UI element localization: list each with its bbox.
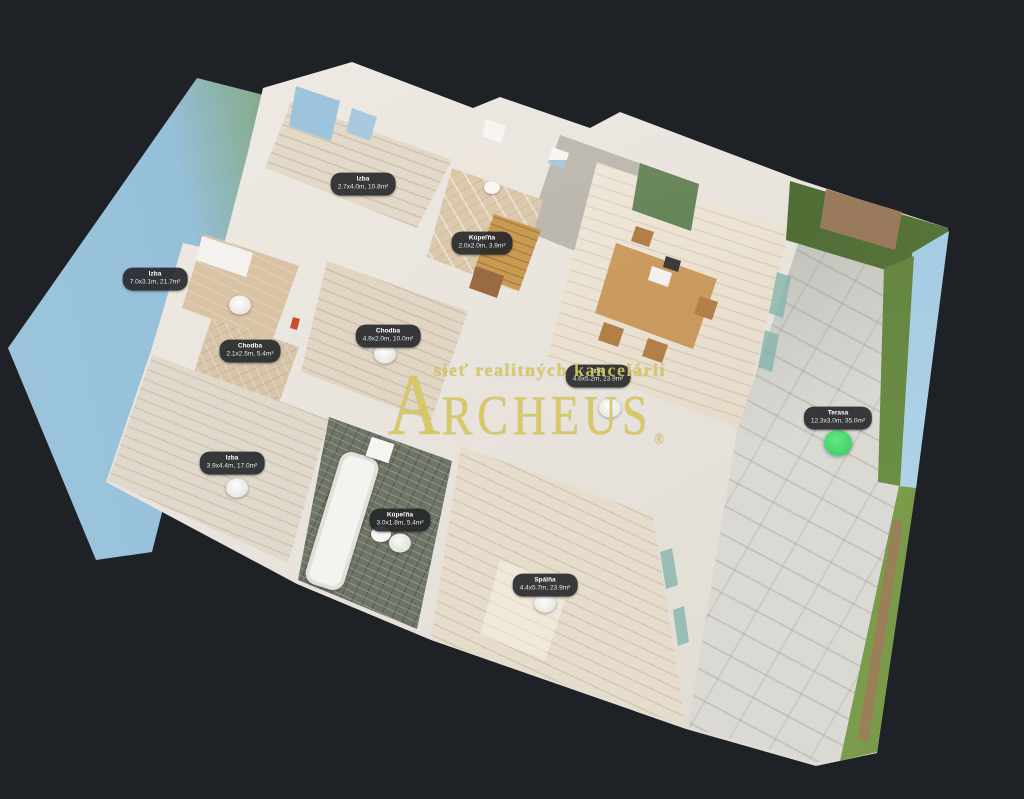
brand-initial: A: [388, 357, 442, 454]
room-label-name: Spálňa: [520, 577, 571, 585]
room-label-name: Izba: [338, 176, 389, 184]
room-label-name: Izba: [207, 455, 258, 463]
brand-rest: RCHEUS: [442, 385, 653, 447]
registered-mark: ®: [654, 431, 664, 448]
panorama-sweep-marker[interactable]: [226, 479, 248, 498]
room-label-dimensions: 12.3x3.0m, 35.0m²: [811, 418, 865, 426]
panorama-sky-right: [0, 0, 1024, 799]
roof-section: [0, 0, 1024, 799]
room-label-dimensions: 3.9x4.4m, 17.0m²: [207, 463, 258, 471]
floor-room-left: [0, 0, 1024, 799]
room-label-name: Kúpeľňa: [377, 512, 424, 520]
room-label[interactable]: Spálňa4.4x5.7m, 23.9m²: [513, 574, 578, 597]
room-label[interactable]: Kúpeľňa2.0x2.0m, 3.9m²: [452, 232, 513, 255]
room-label-dimensions: 3.0x1.8m, 5.4m²: [377, 520, 424, 528]
neighbor-house-panorama: [0, 0, 1024, 799]
hedge-panorama: [0, 0, 1024, 799]
toilet-wc: [484, 181, 500, 194]
room-label[interactable]: Izba3.9x4.4m, 17.0m²: [200, 452, 265, 475]
window-bath-small: [0, 0, 1024, 799]
floor-hallway-main: [0, 0, 1024, 799]
agency-watermark: sieť realitných kancelárií ARCHEUS®: [0, 0, 1024, 799]
glass-door-terrace-1: [0, 0, 1024, 799]
room-label[interactable]: Izba4.6x5.2m, 23.9m²: [566, 365, 631, 388]
floor-kitchen: [0, 0, 1024, 799]
panorama-sweep-marker[interactable]: [599, 399, 621, 418]
dining-chair: [0, 0, 1024, 799]
window-top-room: [0, 0, 1024, 799]
panorama-path-stripe: [0, 0, 1024, 799]
table-item-white: [0, 0, 1024, 799]
panorama-grass-right-upper: [0, 0, 1024, 799]
glass-window-bedroom-1: [0, 0, 1024, 799]
dollhouse-3d-view[interactable]: Izba7.0x3.1m, 21.7m²Izba2.7x4.0m, 10.8m²…: [0, 0, 1024, 799]
floor-terrace: [0, 0, 1024, 799]
room-label-dimensions: 7.0x3.1m, 21.7m²: [130, 279, 181, 287]
floor-room-top: [0, 0, 1024, 799]
table-item-dark: [0, 0, 1024, 799]
watermark-tagline: sieť realitných kancelárií: [434, 360, 666, 381]
room-label-name: Izba: [130, 271, 181, 279]
window-top-room-2: [0, 0, 1024, 799]
room-label[interactable]: Chodba2.1x2.5m, 5.4m²: [220, 340, 281, 363]
floor-dining-room: [0, 0, 1024, 799]
room-label-name: Kúpeľňa: [459, 235, 506, 243]
window-dining-trees: [0, 0, 1024, 799]
house-walls-base: [0, 0, 1024, 799]
panorama-grass-right-lower: [0, 0, 1024, 799]
room-label-dimensions: 2.0x2.0m, 3.9m²: [459, 243, 506, 251]
floor-bathroom-lower: [0, 0, 1024, 799]
room-label[interactable]: Izba7.0x3.1m, 21.7m²: [123, 268, 188, 291]
room-label[interactable]: Terasa12.3x3.0m, 35.0m²: [804, 407, 872, 430]
room-label-name: Chodba: [227, 343, 274, 351]
dining-chair: [0, 0, 1024, 799]
dining-chair: [0, 0, 1024, 799]
kitchen-cabinet: [0, 0, 1024, 799]
room-label-dimensions: 4.4x5.7m, 23.9m²: [520, 585, 571, 593]
window-wc: [0, 0, 1024, 799]
room-label-name: Chodba: [363, 328, 414, 336]
kitchen-red-item: [0, 0, 1024, 799]
panorama-skirt-left: [0, 0, 1024, 799]
floor-bedroom: [0, 0, 1024, 799]
dining-table: [0, 0, 1024, 799]
panorama-sweep-marker[interactable]: [229, 296, 251, 315]
panorama-sweep-marker[interactable]: [389, 534, 411, 553]
wooden-door: [0, 0, 1024, 799]
active-sweep-marker[interactable]: [824, 430, 852, 456]
room-label[interactable]: Chodba4.9x2.0m, 10.0m²: [356, 325, 421, 348]
floor-wc: [0, 0, 1024, 799]
glass-window-bedroom-2: [0, 0, 1024, 799]
floor-bathroom-upper: [0, 0, 1024, 799]
room-label-dimensions: 2.1x2.5m, 5.4m²: [227, 351, 274, 359]
room-label-dimensions: 4.9x2.0m, 10.0m²: [363, 336, 414, 344]
room-label-name: Terasa: [811, 410, 865, 418]
dining-chair: [0, 0, 1024, 799]
glass-door-terrace-2: [0, 0, 1024, 799]
sunlight-patch: [0, 0, 1024, 799]
room-label[interactable]: Kúpeľňa3.0x1.8m, 5.4m²: [370, 509, 431, 532]
room-label[interactable]: Izba2.7x4.0m, 10.8m²: [331, 173, 396, 196]
floor-hallway-small: [0, 0, 1024, 799]
room-label-dimensions: 2.7x4.0m, 10.8m²: [338, 184, 389, 192]
room-label-name: Izba: [573, 368, 624, 376]
sauna-wood-floor: [0, 0, 1024, 799]
room-label-dimensions: 4.6x5.2m, 23.9m²: [573, 376, 624, 384]
